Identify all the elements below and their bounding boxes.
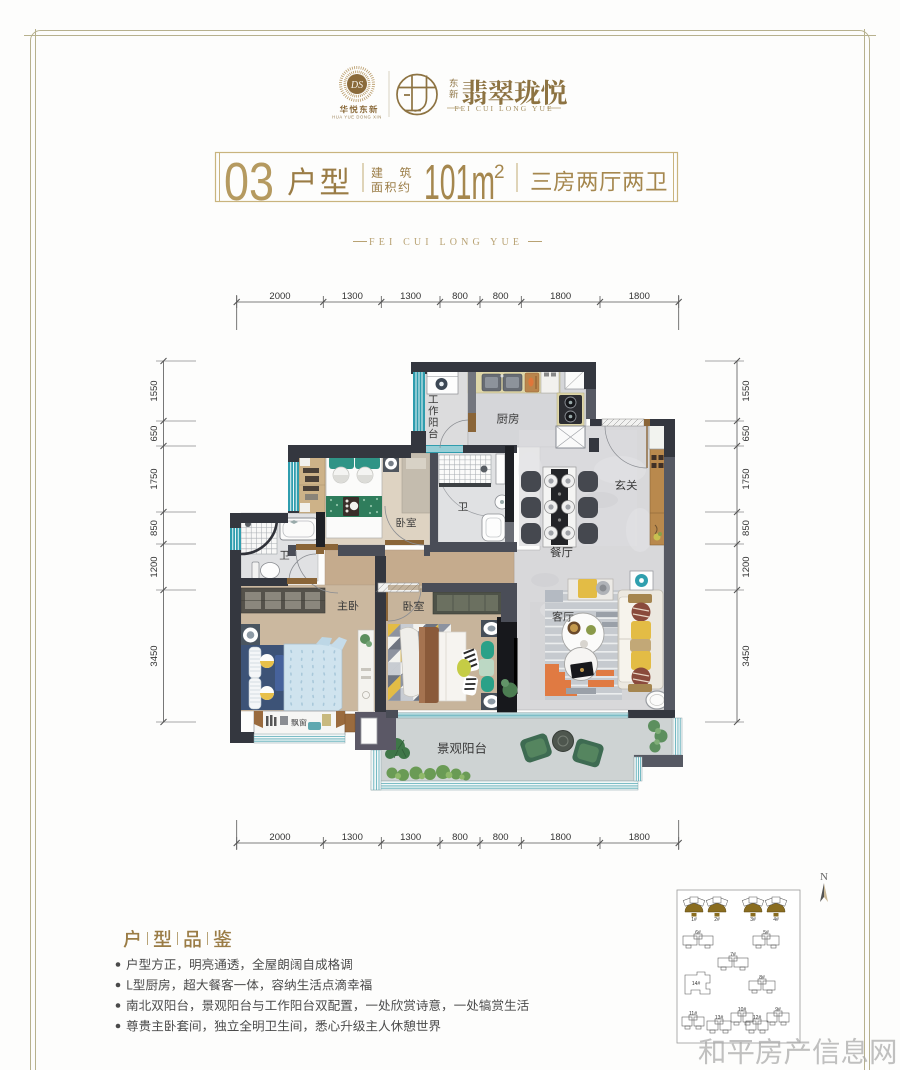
svg-text:2000: 2000 bbox=[269, 291, 290, 302]
svg-text:800: 800 bbox=[452, 291, 468, 302]
svg-text:3450: 3450 bbox=[149, 645, 160, 666]
svg-text:11#: 11# bbox=[689, 1011, 697, 1017]
svg-text:2#: 2# bbox=[714, 917, 720, 923]
svg-text:1750: 1750 bbox=[741, 468, 752, 489]
svg-text:4#: 4# bbox=[773, 917, 779, 923]
svg-text:1#: 1# bbox=[691, 917, 697, 923]
svg-text:850: 850 bbox=[741, 520, 752, 536]
svg-text:03: 03 bbox=[224, 152, 274, 212]
svg-text:13#: 13# bbox=[715, 1015, 724, 1021]
svg-text:1800: 1800 bbox=[629, 291, 650, 302]
svg-text:8#: 8# bbox=[759, 975, 765, 981]
svg-text:FEI CUI LONG YUE: FEI CUI LONG YUE bbox=[454, 104, 553, 113]
svg-text:1300: 1300 bbox=[400, 291, 421, 302]
svg-text:850: 850 bbox=[149, 520, 160, 536]
svg-text:1550: 1550 bbox=[149, 380, 160, 401]
svg-text:1300: 1300 bbox=[400, 832, 421, 843]
svg-text:800: 800 bbox=[493, 291, 509, 302]
svg-text:2000: 2000 bbox=[269, 832, 290, 843]
svg-text:DS: DS bbox=[350, 80, 363, 91]
svg-text:1800: 1800 bbox=[629, 832, 650, 843]
svg-text:3450: 3450 bbox=[741, 645, 752, 666]
svg-text:800: 800 bbox=[493, 832, 509, 843]
svg-text:1200: 1200 bbox=[149, 556, 160, 577]
svg-text:7#: 7# bbox=[730, 952, 736, 958]
svg-text:1200: 1200 bbox=[741, 556, 752, 577]
svg-text:6#: 6# bbox=[695, 930, 701, 936]
svg-text:HUA YUE DONG XIN: HUA YUE DONG XIN bbox=[332, 115, 382, 120]
svg-text:3#: 3# bbox=[750, 917, 756, 923]
svg-text:9#: 9# bbox=[775, 1007, 781, 1013]
svg-text:1550: 1550 bbox=[741, 380, 752, 401]
svg-text:1750: 1750 bbox=[149, 468, 160, 489]
svg-text:1300: 1300 bbox=[342, 291, 363, 302]
svg-text:101m: 101m bbox=[424, 156, 495, 210]
svg-text:1300: 1300 bbox=[342, 832, 363, 843]
svg-text:650: 650 bbox=[149, 426, 160, 442]
svg-text:1800: 1800 bbox=[550, 832, 571, 843]
svg-text:5#: 5# bbox=[763, 930, 769, 936]
svg-text:N: N bbox=[820, 871, 828, 883]
svg-text:1800: 1800 bbox=[550, 291, 571, 302]
svg-text:FEI CUI LONG YUE: FEI CUI LONG YUE bbox=[369, 237, 522, 248]
svg-text:650: 650 bbox=[741, 426, 752, 442]
svg-text:14#: 14# bbox=[692, 981, 701, 987]
svg-text:12#: 12# bbox=[753, 1015, 762, 1021]
svg-text:2: 2 bbox=[494, 162, 505, 183]
svg-text:800: 800 bbox=[452, 832, 468, 843]
svg-text:10#: 10# bbox=[738, 1007, 747, 1013]
